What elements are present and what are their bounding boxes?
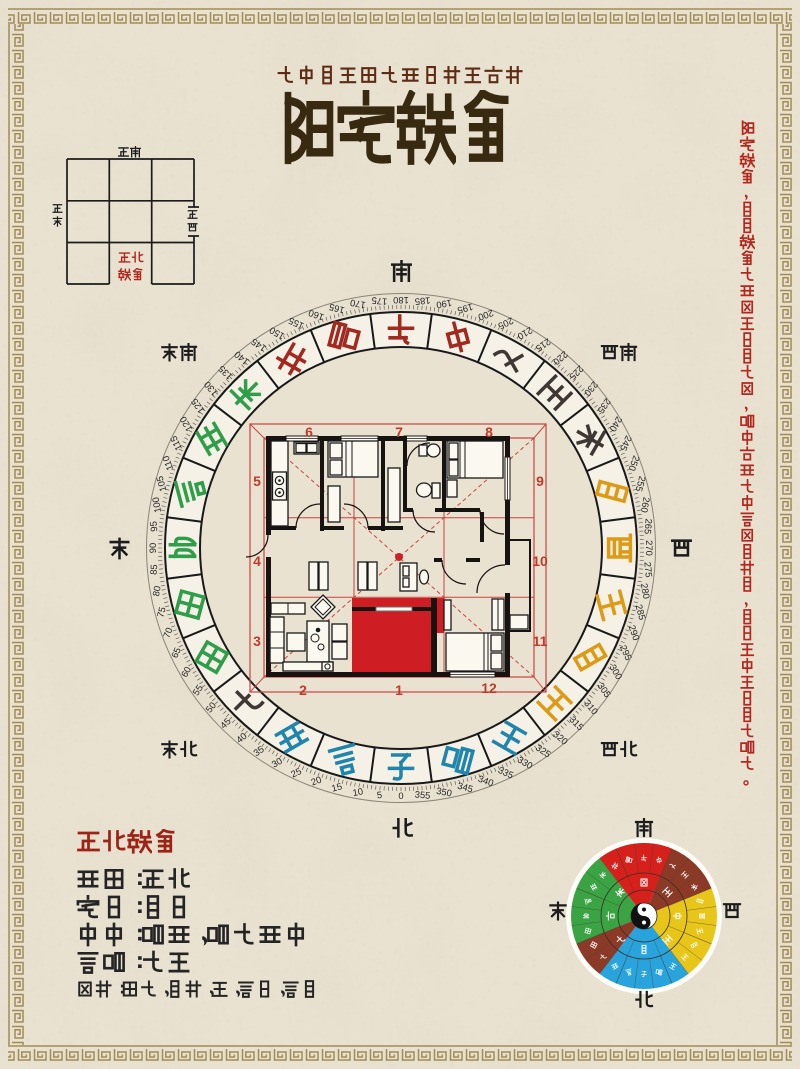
svg-text:9: 9 — [536, 473, 544, 489]
svg-text:275: 275 — [642, 561, 654, 578]
svg-text:2: 2 — [299, 682, 307, 698]
svg-text:1: 1 — [395, 682, 403, 698]
svg-text:7: 7 — [395, 424, 403, 440]
svg-text:270: 270 — [644, 540, 655, 556]
svg-text:12: 12 — [481, 680, 497, 696]
svg-text:175: 175 — [371, 295, 388, 307]
svg-text:90: 90 — [147, 543, 158, 553]
svg-text:5: 5 — [376, 789, 382, 800]
svg-text:180: 180 — [393, 295, 409, 306]
svg-text:3: 3 — [253, 633, 261, 649]
svg-text:10: 10 — [532, 553, 548, 569]
svg-text:4: 4 — [253, 553, 261, 569]
svg-text:80: 80 — [150, 585, 163, 597]
svg-text:6: 6 — [305, 424, 313, 440]
svg-text:11: 11 — [533, 633, 548, 649]
svg-text:10: 10 — [352, 785, 364, 798]
svg-text:0: 0 — [398, 790, 403, 801]
svg-text:355: 355 — [414, 788, 431, 800]
svg-text:95: 95 — [147, 521, 159, 532]
svg-text:8: 8 — [485, 424, 493, 440]
svg-text:5: 5 — [253, 473, 261, 489]
svg-text:185: 185 — [414, 295, 431, 307]
svg-text:85: 85 — [147, 564, 159, 575]
svg-text:265: 265 — [642, 518, 654, 535]
